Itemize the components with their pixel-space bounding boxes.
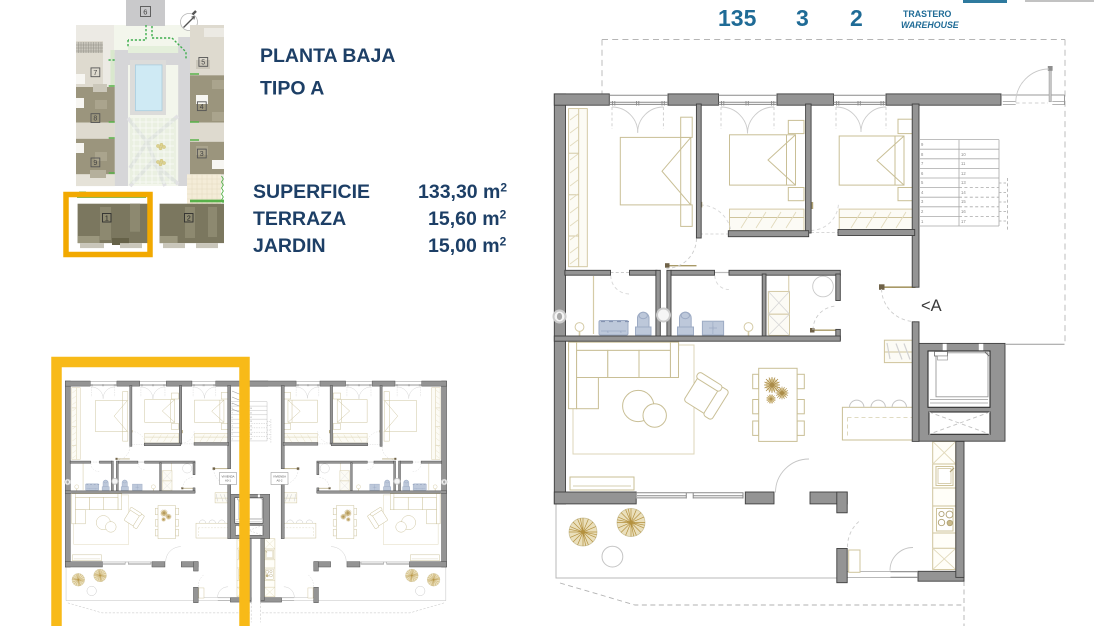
- svg-text:2: 2: [850, 5, 863, 31]
- svg-text:3: 3: [796, 5, 809, 31]
- svg-text:4: 4: [200, 104, 204, 111]
- svg-text:3: 3: [200, 151, 204, 158]
- svg-text:WAREHOUSE: WAREHOUSE: [901, 20, 960, 30]
- svg-text:A0-1: A0-1: [225, 479, 231, 483]
- svg-text:9: 9: [93, 160, 97, 167]
- svg-text:135: 135: [718, 5, 757, 31]
- svg-text:PLANTA BAJA: PLANTA BAJA: [260, 45, 395, 67]
- svg-text:A0-2: A0-2: [277, 479, 283, 483]
- svg-text:6: 6: [143, 8, 147, 17]
- svg-text:TERRAZA: TERRAZA: [253, 208, 346, 230]
- svg-text:7: 7: [93, 70, 97, 77]
- svg-text:TRASTERO: TRASTERO: [903, 9, 952, 19]
- svg-text:SUPERFICIE: SUPERFICIE: [253, 181, 370, 203]
- svg-text:2: 2: [187, 216, 191, 223]
- svg-text:8: 8: [93, 116, 97, 123]
- svg-text:133,30 m2: 133,30 m2: [418, 181, 507, 204]
- svg-text:1: 1: [105, 216, 109, 223]
- svg-text:15,00 m2: 15,00 m2: [428, 235, 507, 258]
- svg-text:JARDIN: JARDIN: [253, 235, 326, 257]
- svg-text:5: 5: [201, 60, 205, 67]
- svg-text:15,60 m2: 15,60 m2: [428, 208, 507, 231]
- svg-text:TIPO A: TIPO A: [260, 78, 324, 100]
